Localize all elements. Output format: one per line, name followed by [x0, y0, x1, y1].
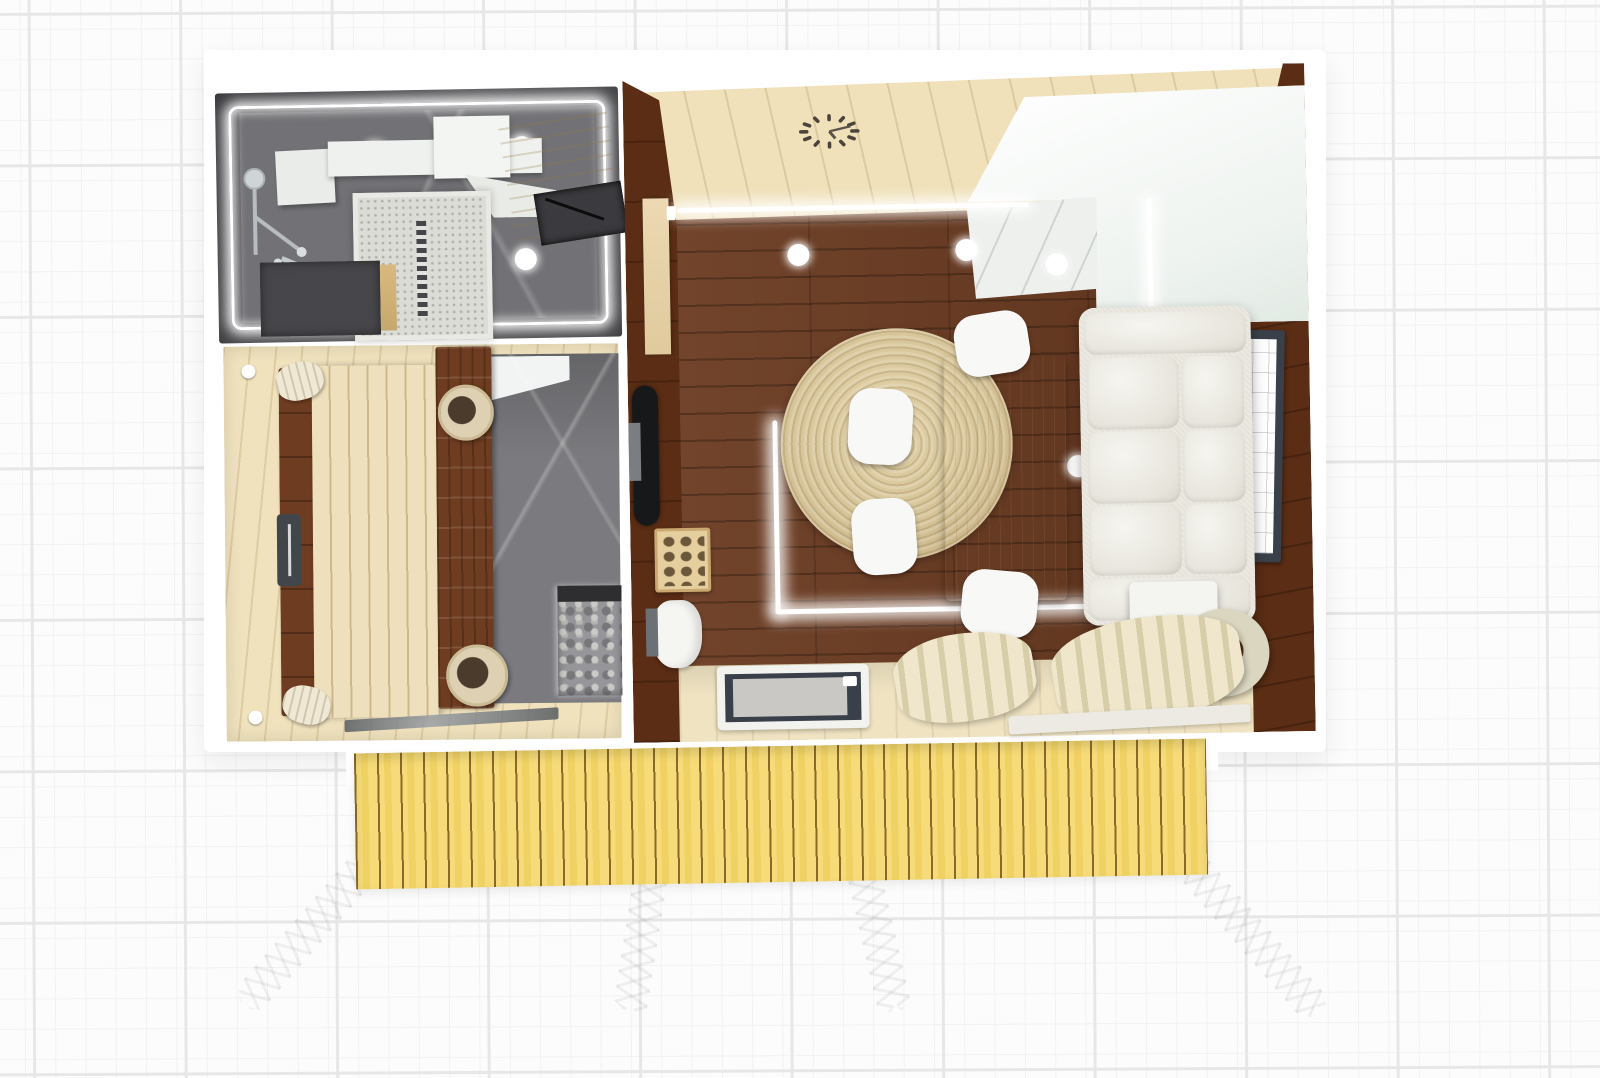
vanity-counter-block[interactable]	[433, 115, 510, 178]
sofa-back-cushion	[1183, 429, 1246, 502]
corner-knob	[241, 364, 255, 378]
sauna-door-handle[interactable]	[277, 514, 302, 586]
sofa-seat-cushion	[1089, 504, 1182, 576]
firewood-crate[interactable]	[654, 528, 711, 593]
front-deck[interactable]	[354, 739, 1208, 890]
door-handle	[843, 676, 857, 686]
stove-panel	[628, 423, 641, 481]
kitchenette-worktop[interactable]	[966, 197, 1098, 299]
wall-door-panel[interactable]	[642, 198, 671, 354]
three-seat-sofa[interactable]	[1078, 305, 1256, 626]
sauna-stone-heater[interactable]	[557, 585, 622, 696]
chair-seat	[972, 580, 1027, 626]
corner-knob	[248, 710, 262, 724]
appliance[interactable]	[651, 600, 702, 669]
sofa-back-cushion	[1184, 503, 1247, 574]
sauna-bucket[interactable]	[438, 384, 494, 440]
chair-seat	[863, 509, 907, 564]
dining-chair[interactable]	[850, 496, 919, 576]
door-glass	[733, 677, 848, 717]
sofa-seat-cushion	[1088, 430, 1181, 504]
sauna-upper-bench[interactable]	[311, 365, 438, 718]
chair-seat	[964, 321, 1019, 366]
dining-chair[interactable]	[959, 567, 1040, 639]
sofa-back-cushion	[1181, 355, 1244, 428]
sauna-bucket[interactable]	[446, 644, 509, 707]
room-living[interactable]	[622, 59, 1316, 743]
dining-chair[interactable]	[846, 387, 914, 466]
linear-drain	[416, 221, 428, 317]
sofa-armrest	[1083, 310, 1246, 355]
storage-cabinet[interactable]	[260, 261, 381, 337]
room-sauna[interactable]	[223, 343, 621, 741]
sofa-seat-cushion	[1086, 356, 1179, 430]
chair-seat	[859, 400, 902, 454]
wall-clock-icon[interactable]	[791, 107, 868, 156]
entry-glass-door[interactable]	[717, 664, 870, 731]
dining-table[interactable]	[943, 356, 1067, 601]
room-bathroom[interactable]	[215, 87, 622, 344]
floorplan-canvas	[0, 0, 1600, 1078]
